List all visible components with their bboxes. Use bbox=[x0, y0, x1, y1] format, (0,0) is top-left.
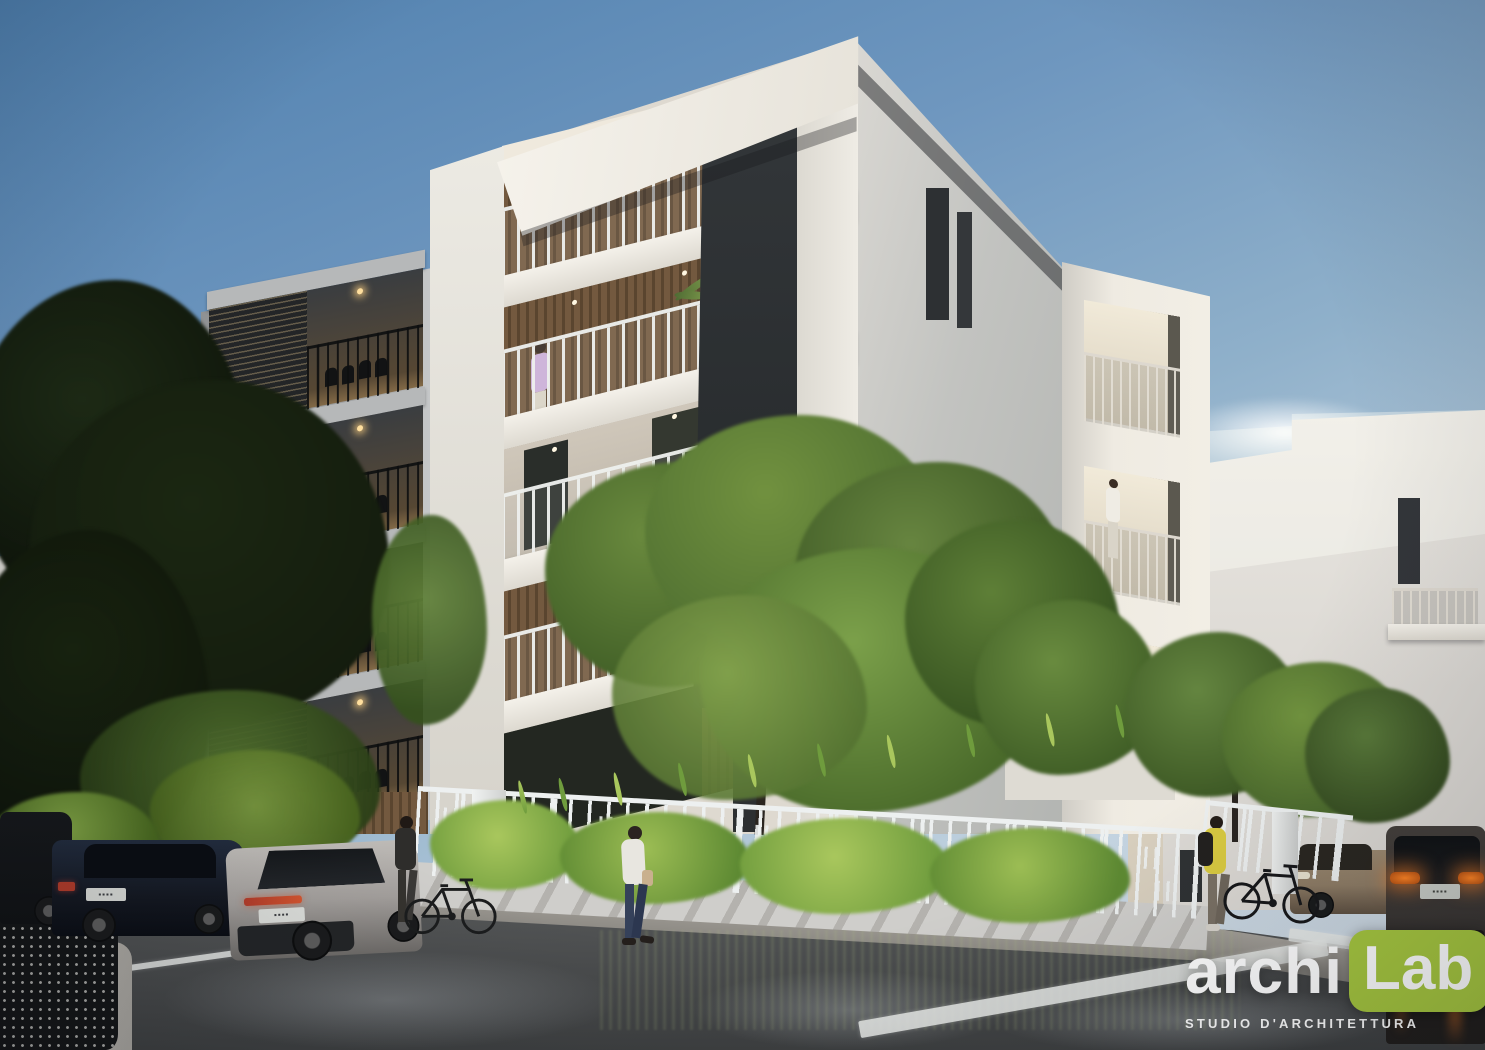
puddle bbox=[160, 950, 620, 1050]
car-windows bbox=[84, 844, 216, 878]
left-pillar bbox=[430, 146, 504, 834]
car-taillight bbox=[1390, 872, 1420, 884]
car-wheel bbox=[82, 908, 116, 942]
car-wheel bbox=[194, 904, 224, 934]
logo-text-lab: Lab bbox=[1349, 930, 1485, 1012]
person-on-tower-balcony bbox=[1104, 477, 1122, 562]
tree-canopy bbox=[612, 595, 867, 800]
architectural-rendering: ▪▪▪▪ ▪▪▪▪ ▪▪▪▪ bbox=[0, 0, 1485, 1050]
fence-plants bbox=[560, 812, 750, 904]
window bbox=[1398, 498, 1420, 584]
bicycle-right bbox=[1220, 847, 1325, 928]
balcony-railing bbox=[1392, 588, 1478, 629]
archilab-logo: archi Lab STUDIO D'ARCHITETTURA bbox=[1185, 930, 1485, 1031]
balcony-slab bbox=[1388, 624, 1485, 640]
tree-canopy bbox=[1305, 688, 1450, 823]
logo-text-archi: archi bbox=[1185, 939, 1343, 1003]
car-navy-sedan: ▪▪▪▪ bbox=[52, 840, 244, 936]
car-taillight bbox=[244, 895, 302, 906]
fence-plants bbox=[930, 828, 1130, 923]
fence-plants bbox=[740, 818, 950, 914]
window-slot bbox=[957, 212, 972, 328]
car-windows bbox=[247, 845, 385, 890]
pedestrian-center bbox=[614, 826, 654, 968]
car-taillight bbox=[1458, 872, 1484, 884]
license-plate: ▪▪▪▪ bbox=[86, 888, 126, 901]
car-taillight bbox=[58, 882, 75, 891]
license-plate: ▪▪▪▪ bbox=[258, 907, 305, 923]
logo-tagline: STUDIO D'ARCHITETTURA bbox=[1185, 1016, 1485, 1031]
bicycle-left bbox=[402, 866, 498, 936]
license-plate: ▪▪▪▪ bbox=[1420, 884, 1460, 899]
window-slot bbox=[926, 188, 949, 320]
climbing-plant bbox=[372, 515, 487, 725]
